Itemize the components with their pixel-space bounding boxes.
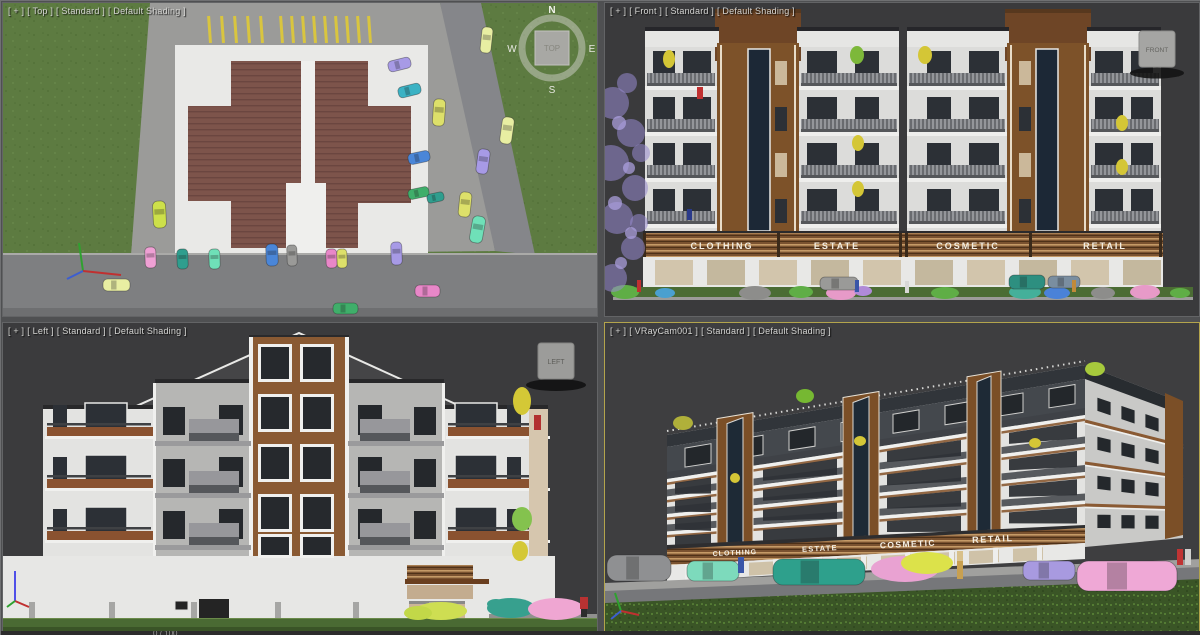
shop-sign-clothing: CLOTHING xyxy=(691,241,754,251)
timeline-bar[interactable]: 0 / 100 xyxy=(1,631,1200,635)
car[interactable] xyxy=(333,303,358,314)
viewport-label: [ + ][ Top ][ Standard ][ Default Shadin… xyxy=(8,6,189,16)
viewport-menu-shading[interactable]: [ Default Shading ] xyxy=(753,326,831,336)
viewcube-north[interactable]: N xyxy=(548,5,555,16)
tree[interactable] xyxy=(1085,362,1105,376)
viewcube-east[interactable]: E xyxy=(589,44,596,55)
shop-sign-estate: ESTATE xyxy=(814,241,860,251)
max-viewport-grid: TOP N S E W [ + ][ Top ][ Standard ][ De… xyxy=(0,0,1200,635)
car[interactable] xyxy=(687,561,739,581)
person[interactable] xyxy=(1185,549,1191,565)
car[interactable] xyxy=(1077,561,1177,591)
tree[interactable] xyxy=(663,50,675,68)
viewport-menu-general[interactable]: [ + ] xyxy=(8,326,24,336)
grass-strip xyxy=(3,619,598,627)
viewport-menu-general[interactable]: [ + ] xyxy=(610,326,626,336)
viewport-menu-pov[interactable]: [ Left ] xyxy=(27,326,54,336)
person[interactable] xyxy=(1177,549,1183,565)
viewport-left[interactable]: LEFT [ + ][ Left ][ Standard ][ Default … xyxy=(2,322,598,632)
viewport-menu-standard[interactable]: [ Standard ] xyxy=(57,326,106,336)
viewport-camera[interactable]: CLOTHING ESTATE COSMETIC RETAIL [ + ][ V… xyxy=(604,322,1200,632)
car[interactable] xyxy=(266,244,279,266)
bush[interactable] xyxy=(739,286,771,300)
car[interactable] xyxy=(607,555,671,581)
person[interactable] xyxy=(855,280,859,292)
bush[interactable] xyxy=(901,552,953,574)
viewport-menu-pov[interactable]: [ VRayCam001 ] xyxy=(629,326,698,336)
tree[interactable] xyxy=(852,181,864,197)
viewport-menu-standard[interactable]: [ Standard ] xyxy=(701,326,750,336)
car[interactable] xyxy=(209,249,221,269)
building-roof-top-view[interactable] xyxy=(175,45,428,253)
viewport-label: [ + ][ Left ][ Standard ][ Default Shadi… xyxy=(8,326,190,336)
tree[interactable] xyxy=(918,46,932,64)
viewport-menu-pov[interactable]: [ Top ] xyxy=(27,6,53,16)
car[interactable] xyxy=(103,279,130,291)
car[interactable] xyxy=(528,598,584,620)
tree[interactable] xyxy=(1116,115,1128,131)
shop-sign-retail: RETAIL xyxy=(1083,241,1127,251)
viewport-menu-shading[interactable]: [ Default Shading ] xyxy=(109,326,187,336)
car[interactable] xyxy=(1009,275,1045,289)
tree[interactable] xyxy=(796,389,814,403)
car[interactable] xyxy=(391,242,403,265)
bush[interactable] xyxy=(1170,288,1190,298)
timeline-frame[interactable]: 0 / 100 xyxy=(153,631,177,635)
car[interactable] xyxy=(820,277,858,290)
person[interactable] xyxy=(580,597,588,617)
car[interactable] xyxy=(480,26,494,53)
tree[interactable] xyxy=(852,135,864,151)
car[interactable] xyxy=(152,201,166,229)
viewport-label: [ + ][ Front ][ Standard ][ Default Shad… xyxy=(610,6,798,16)
bush[interactable] xyxy=(655,288,675,298)
tree[interactable] xyxy=(1029,438,1041,448)
person[interactable] xyxy=(957,561,963,579)
viewport-menu-general[interactable]: [ + ] xyxy=(8,6,24,16)
viewcube-face-label[interactable]: FRONT xyxy=(1146,47,1168,54)
person[interactable] xyxy=(1072,280,1076,292)
viewcube-west[interactable]: W xyxy=(507,44,517,55)
viewcube-ring[interactable] xyxy=(526,379,586,391)
car[interactable] xyxy=(1023,561,1075,580)
car[interactable] xyxy=(432,99,446,127)
tree[interactable] xyxy=(673,416,693,430)
shop-sign-estate: ESTATE xyxy=(802,543,838,554)
viewcube-face-label[interactable]: TOP xyxy=(544,44,560,53)
car[interactable] xyxy=(177,249,189,269)
bush[interactable] xyxy=(1130,285,1160,299)
viewcube-south[interactable]: S xyxy=(549,85,556,96)
bush[interactable] xyxy=(1044,287,1070,299)
viewcube-face-label[interactable]: LEFT xyxy=(547,359,565,366)
viewport-top[interactable]: TOP N S E W [ + ][ Top ][ Standard ][ De… xyxy=(2,2,598,317)
shop-sign-cosmetic: COSMETIC xyxy=(936,241,1000,251)
viewport-menu-pov[interactable]: [ Front ] xyxy=(629,6,662,16)
bush[interactable] xyxy=(931,287,959,299)
car[interactable] xyxy=(337,249,348,268)
tree[interactable] xyxy=(854,436,866,446)
viewport-front[interactable]: CLOTHING ESTATE COSMETIC RETAIL FRONT [ … xyxy=(604,2,1200,317)
viewport-menu-standard[interactable]: [ Standard ] xyxy=(665,6,714,16)
car[interactable] xyxy=(287,245,298,266)
tree[interactable] xyxy=(850,46,864,64)
shop-sign-retail: RETAIL xyxy=(972,533,1014,545)
viewport-menu-shading[interactable]: [ Default Shading ] xyxy=(717,6,795,16)
car[interactable] xyxy=(415,285,440,297)
tree[interactable] xyxy=(730,473,740,483)
car[interactable] xyxy=(326,249,338,268)
tree[interactable] xyxy=(1116,159,1128,175)
viewcube-ring[interactable] xyxy=(1130,68,1184,79)
bush[interactable] xyxy=(1091,287,1115,299)
car[interactable] xyxy=(773,559,865,585)
person[interactable] xyxy=(905,281,909,293)
car[interactable] xyxy=(458,191,473,217)
viewport-label: [ + ][ VRayCam001 ][ Standard ][ Default… xyxy=(610,326,834,336)
person[interactable] xyxy=(738,557,744,573)
viewport-menu-standard[interactable]: [ Standard ] xyxy=(56,6,105,16)
person[interactable] xyxy=(637,280,641,292)
car[interactable] xyxy=(145,247,157,268)
bush[interactable] xyxy=(789,286,813,298)
viewport-menu-general[interactable]: [ + ] xyxy=(610,6,626,16)
viewport-menu-shading[interactable]: [ Default Shading ] xyxy=(108,6,186,16)
